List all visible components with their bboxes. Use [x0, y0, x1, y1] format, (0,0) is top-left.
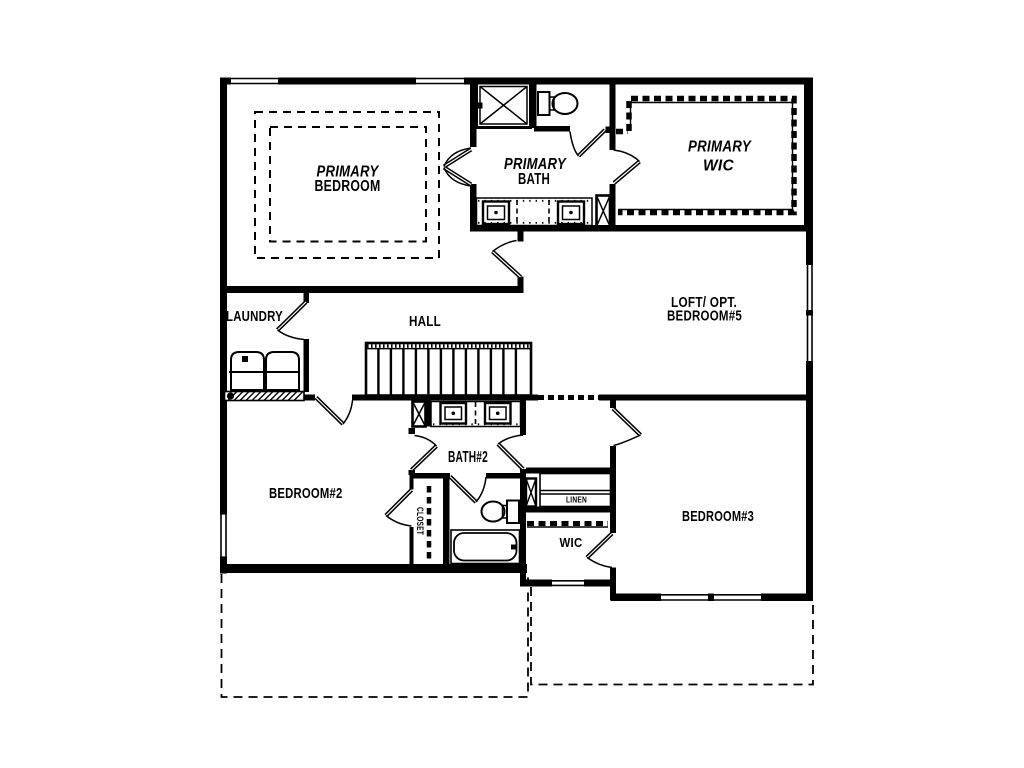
svg-text:BEDROOM#2: BEDROOM#2	[269, 485, 343, 502]
svg-text:HALL: HALL	[409, 314, 441, 330]
svg-text:WIC: WIC	[703, 158, 735, 175]
svg-text:PRIMARY: PRIMARY	[688, 139, 752, 156]
svg-text:LAUNDRY: LAUNDRY	[226, 309, 283, 325]
svg-text:BEDROOM: BEDROOM	[315, 178, 381, 195]
svg-text:LINEN: LINEN	[566, 495, 587, 505]
svg-text:BEDROOM#5: BEDROOM#5	[667, 309, 742, 325]
svg-text:WIC: WIC	[560, 536, 583, 550]
svg-text:CLOSET: CLOSET	[415, 507, 425, 535]
svg-text:BATH#2: BATH#2	[448, 449, 488, 466]
svg-text:BEDROOM#3: BEDROOM#3	[682, 508, 754, 525]
svg-text:BATH: BATH	[518, 171, 550, 188]
